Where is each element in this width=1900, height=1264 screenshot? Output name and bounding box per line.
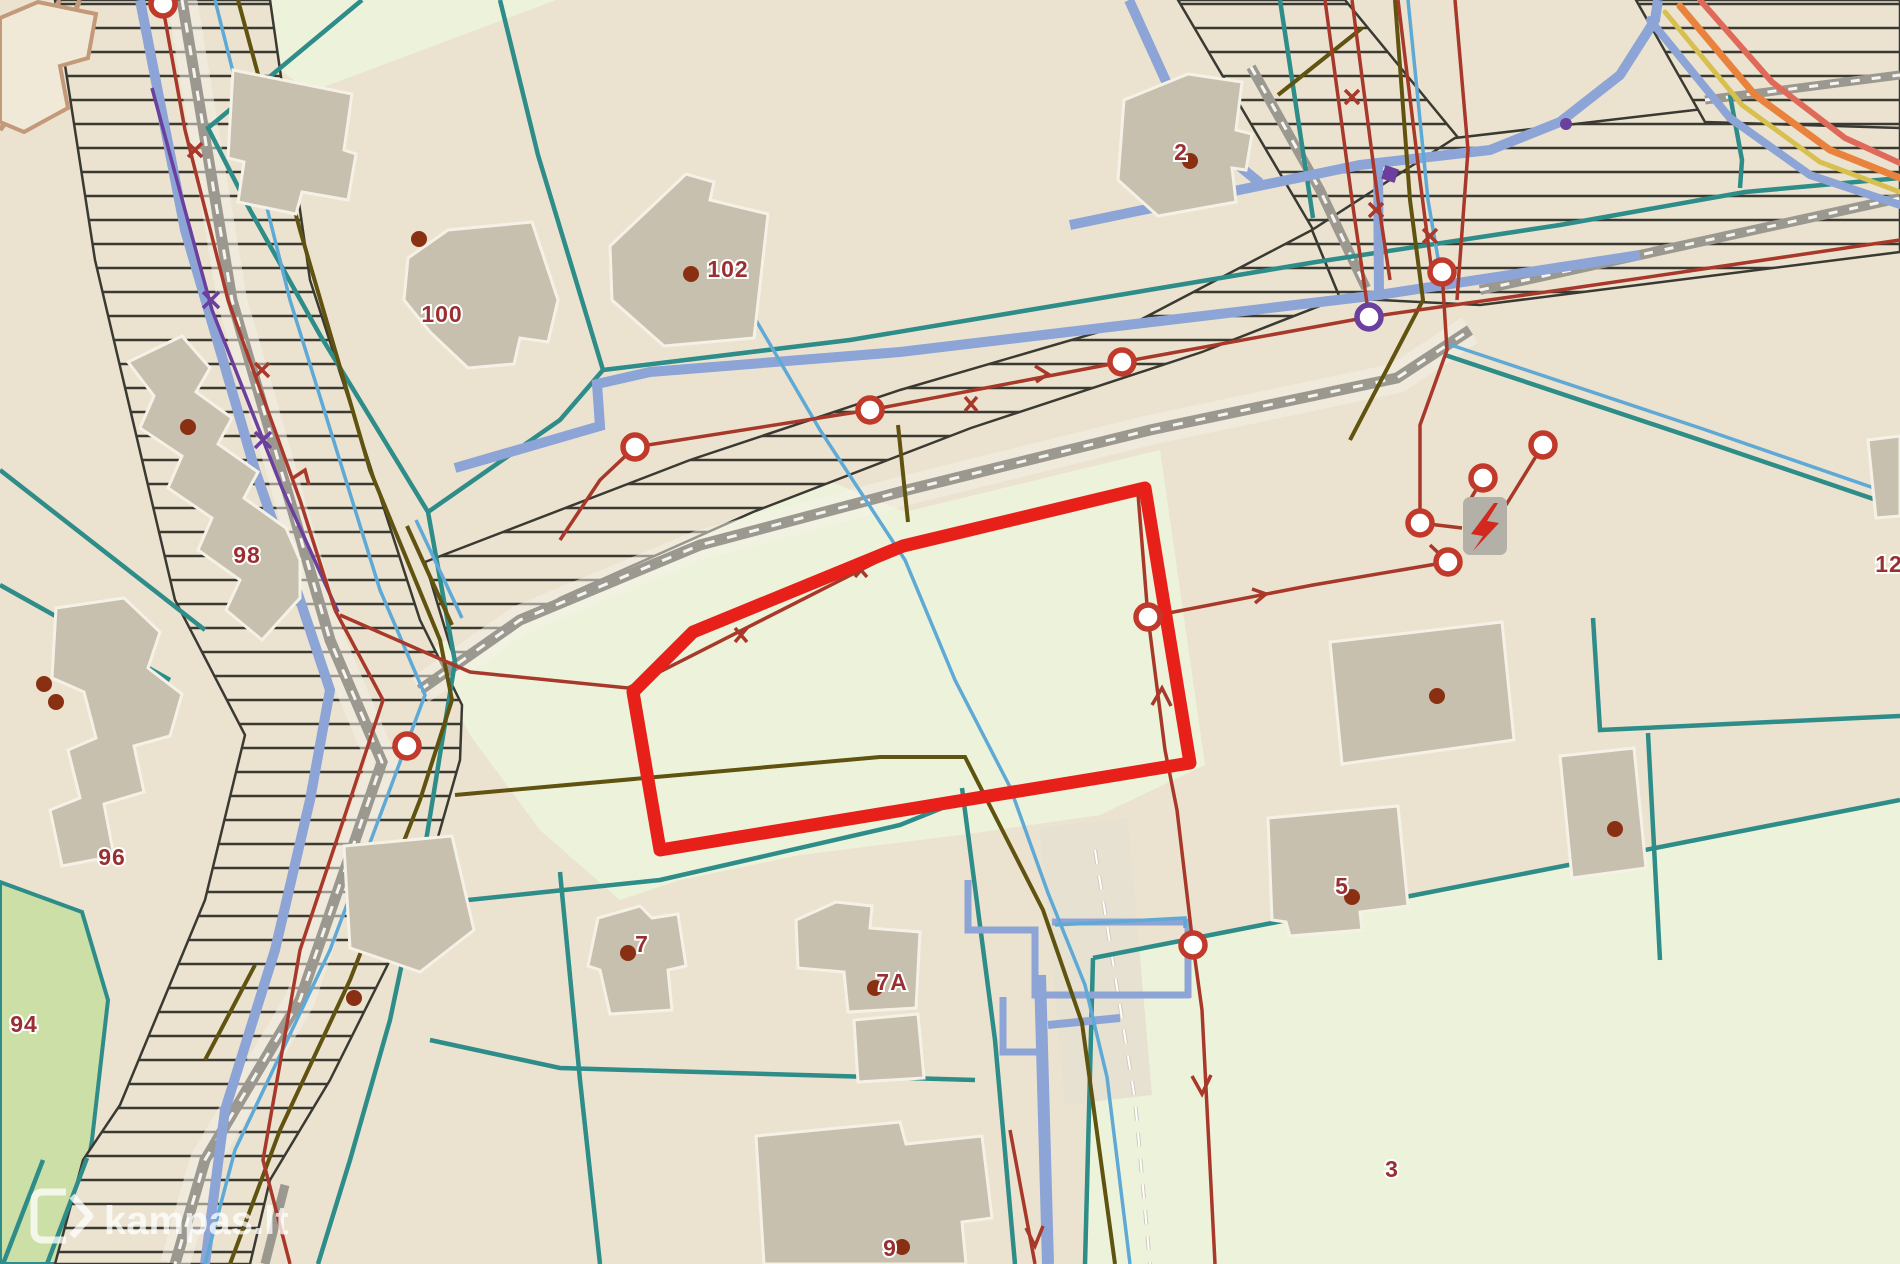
utility-node-icon [395, 734, 419, 758]
parcel-label: 96 [98, 844, 126, 870]
parcel-label: 94 [10, 1011, 38, 1037]
utility-node-icon [623, 435, 647, 459]
building-dot [346, 990, 362, 1006]
building-dot [683, 266, 699, 282]
utility-node-icon [1408, 511, 1432, 535]
building-dot [48, 694, 64, 710]
utility-node-icon [1357, 305, 1381, 329]
utility-node-icon [858, 398, 882, 422]
utility-node-icon [1531, 433, 1555, 457]
utility-node-icon [1136, 605, 1160, 629]
building-dot [180, 419, 196, 435]
building-dot [36, 676, 52, 692]
parcel-label: 100 [421, 301, 462, 327]
building-dot [411, 231, 427, 247]
building-9 [756, 1122, 992, 1264]
parcel-label: 7 [635, 931, 649, 957]
parcel-label: 12 [1875, 551, 1900, 577]
utility-node-icon [1181, 933, 1205, 957]
parcel-label: 102 [707, 256, 748, 282]
parcel-label: 2 [1174, 139, 1188, 165]
parcel-label: 7A [876, 969, 907, 995]
parcel-label: 5 [1335, 873, 1349, 899]
building [1560, 748, 1646, 878]
utility-node-icon [1110, 350, 1134, 374]
parcel-label: 3 [1385, 1156, 1399, 1182]
building-dot [1429, 688, 1445, 704]
utility-node-icon [151, 0, 175, 16]
cadastral-map-viewport[interactable]: 100102298969477A95312 kampas.lt [0, 0, 1900, 1264]
parcel-label: 9 [883, 1235, 897, 1261]
parcel-label: 98 [233, 542, 261, 568]
power-substation [1463, 497, 1507, 555]
building-dot [1607, 821, 1623, 837]
building [854, 1014, 924, 1082]
building-dot [620, 945, 636, 961]
utility-node-icon [1471, 466, 1495, 490]
map-canvas[interactable]: 100102298969477A95312 kampas.lt [0, 0, 1900, 1264]
utility-node-icon [1430, 260, 1454, 284]
building [1330, 622, 1514, 764]
watermark-text: kampas.lt [104, 1199, 289, 1243]
utility-node-icon [1436, 550, 1460, 574]
building [228, 70, 356, 214]
